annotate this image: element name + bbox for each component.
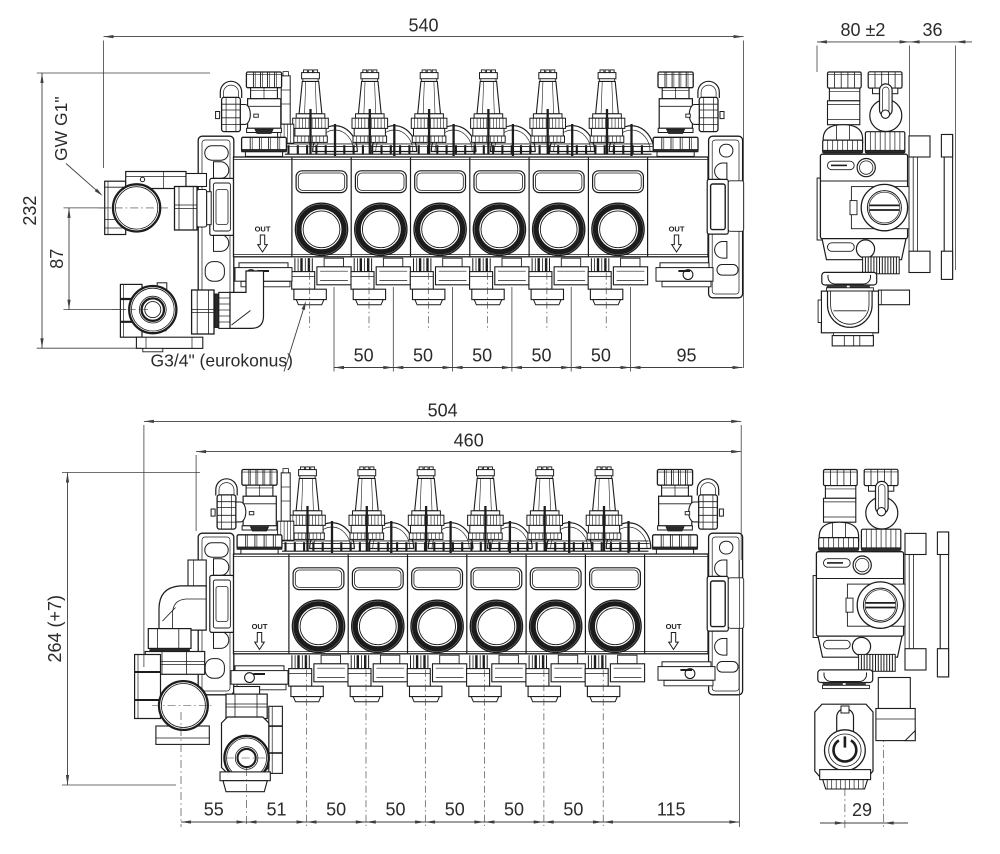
svg-text:232: 232 <box>20 196 40 226</box>
svg-text:29: 29 <box>852 800 872 820</box>
svg-text:G3/4" (eurokonus): G3/4" (eurokonus) <box>151 351 293 371</box>
svg-text:OUT: OUT <box>669 225 685 234</box>
svg-text:264 (+7): 264 (+7) <box>45 595 65 663</box>
svg-text:50: 50 <box>531 346 551 366</box>
svg-text:50: 50 <box>563 800 583 820</box>
svg-text:36: 36 <box>922 20 942 40</box>
svg-text:115: 115 <box>657 800 686 820</box>
svg-text:540: 540 <box>408 16 438 36</box>
svg-text:50: 50 <box>445 800 465 820</box>
svg-text:55: 55 <box>204 800 224 820</box>
svg-text:50: 50 <box>326 800 346 820</box>
svg-text:51: 51 <box>266 800 286 820</box>
svg-text:50: 50 <box>591 346 611 366</box>
svg-text:87: 87 <box>47 249 67 269</box>
svg-text:OUT: OUT <box>255 225 271 234</box>
svg-text:50: 50 <box>413 346 433 366</box>
svg-text:460: 460 <box>454 431 484 451</box>
svg-text:OUT: OUT <box>252 622 268 631</box>
svg-text:50: 50 <box>472 346 492 366</box>
svg-text:80 ±2: 80 ±2 <box>841 20 886 40</box>
svg-text:50: 50 <box>504 800 524 820</box>
svg-text:95: 95 <box>676 346 696 366</box>
svg-text:504: 504 <box>428 400 458 420</box>
svg-text:50: 50 <box>385 800 405 820</box>
svg-text:OUT: OUT <box>666 622 682 631</box>
svg-text:GW G1": GW G1" <box>51 96 71 161</box>
svg-text:50: 50 <box>354 346 374 366</box>
